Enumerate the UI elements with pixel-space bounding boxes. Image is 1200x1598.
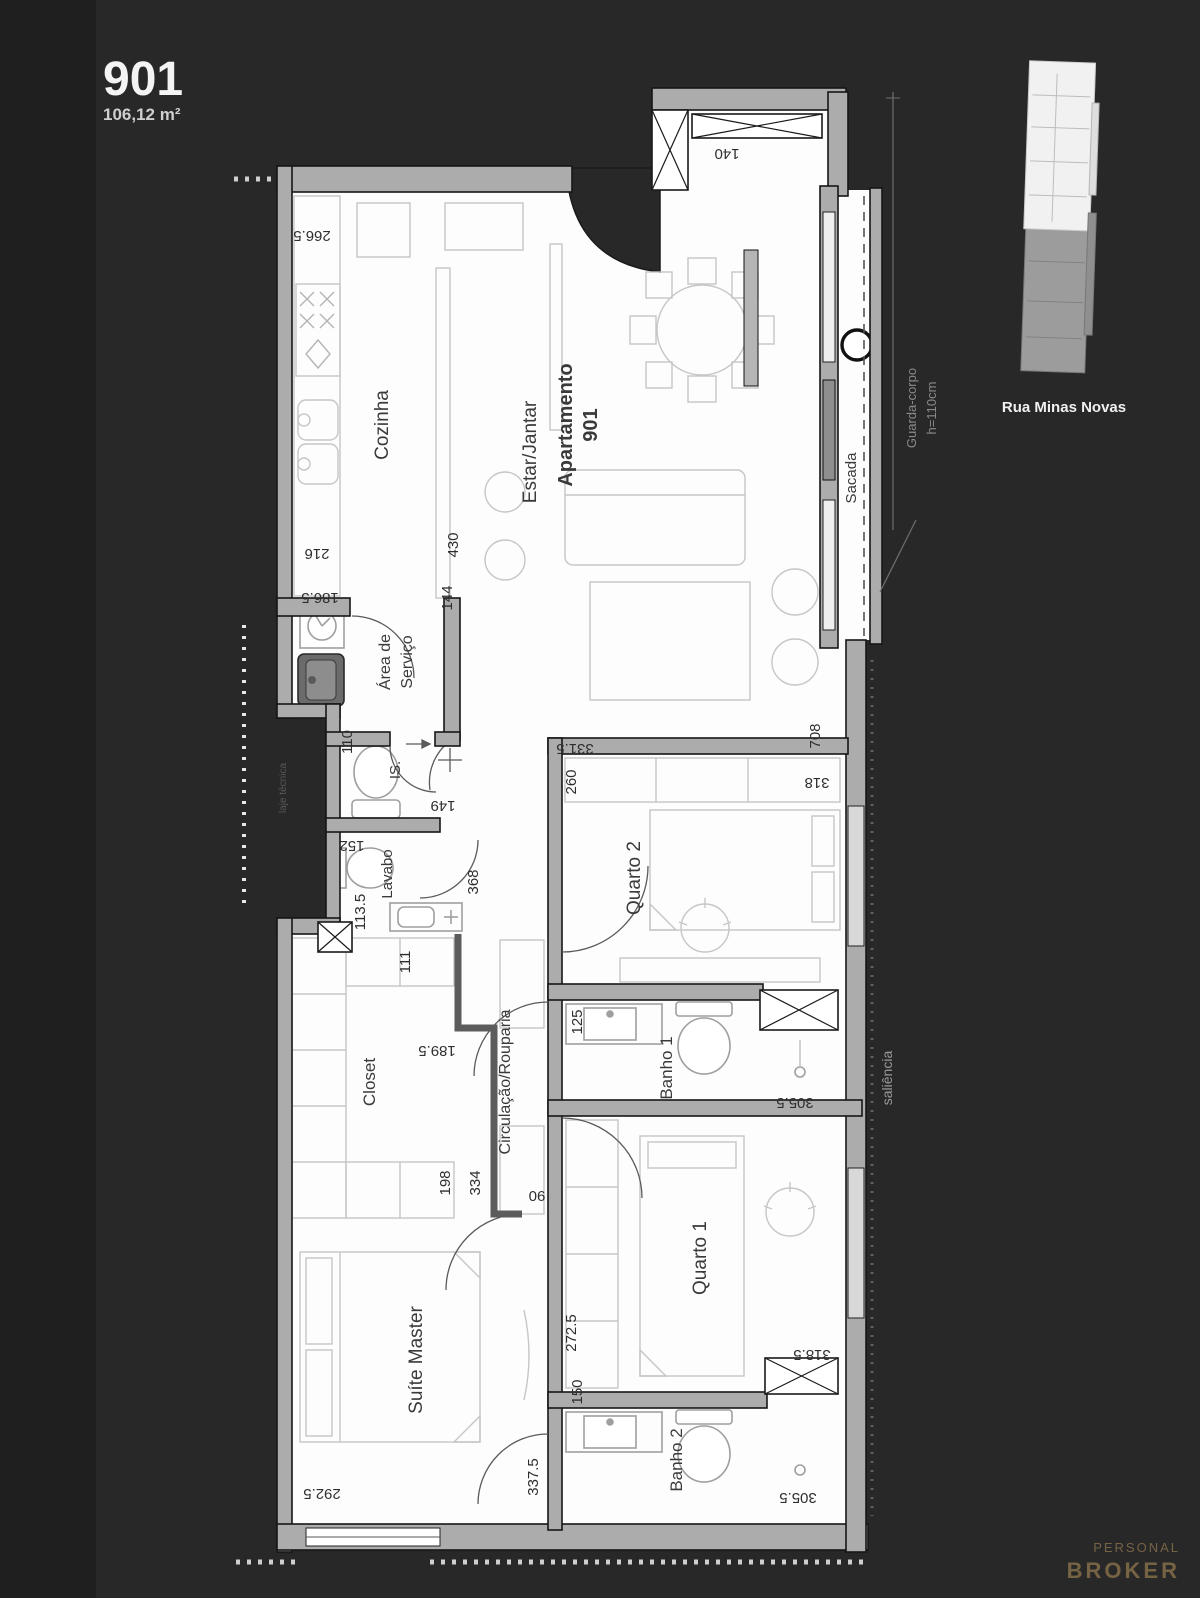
- balcony-door-leaf: [823, 380, 835, 480]
- dim-430: 430: [445, 532, 462, 557]
- logo-personal: PERSONAL: [1093, 1540, 1180, 1555]
- logo-broker: BROKER: [1067, 1558, 1180, 1583]
- label-apto-2: 901: [580, 408, 602, 441]
- label-servico-1: Área de: [375, 634, 394, 690]
- dim-318-5: 318.5: [793, 1346, 831, 1363]
- dim-272-5: 272.5: [563, 1314, 580, 1352]
- wall-top: [277, 166, 572, 192]
- dim-368: 368: [465, 869, 482, 894]
- dim-318: 318: [804, 774, 829, 791]
- is-toilet: [352, 746, 400, 818]
- wall-is-top-b: [435, 732, 460, 746]
- label-lavabo: Lavabo: [379, 849, 396, 898]
- balcony-column: [842, 330, 872, 360]
- wall-corridor: [548, 738, 562, 1530]
- wall-is-top-a: [326, 732, 390, 746]
- unit-area: 106,12 m²: [103, 105, 181, 124]
- label-is: IS.: [387, 761, 404, 779]
- label-estar: Estar/Jantar: [520, 400, 541, 503]
- laundry-tank: [298, 654, 344, 706]
- dim-331-5: 331.5: [556, 740, 594, 757]
- dim-189-5: 189.5: [418, 1042, 456, 1059]
- dim-260: 260: [563, 769, 580, 794]
- window-estar-b: [823, 500, 835, 630]
- wall-is-lavabo: [326, 818, 440, 832]
- dim-150: 150: [569, 1379, 586, 1404]
- left-shade: [0, 0, 96, 1598]
- dim-198: 198: [437, 1170, 454, 1195]
- label-guardacorpo-2: h=110cm: [924, 382, 939, 435]
- wall-quarto2-banho1: [548, 984, 763, 1000]
- shaft-lavabo: [318, 922, 352, 952]
- label-circulacao: Circulação/Rouparia: [497, 1009, 514, 1154]
- dim-110: 110: [339, 730, 356, 754]
- label-saliencia: saliência: [879, 1051, 895, 1106]
- label-cozinha: Cozinha: [372, 390, 393, 460]
- dim-144: 144: [439, 585, 456, 610]
- dim-90: 90: [529, 1187, 546, 1204]
- dim-152: 152: [339, 837, 364, 854]
- dim-305-5b: 305.5: [779, 1489, 817, 1506]
- label-suite: Suíte Master: [406, 1305, 427, 1413]
- wall-banho1-quarto1: [548, 1100, 862, 1116]
- guard-rail-leader: [880, 520, 916, 592]
- wall-hall-right: [828, 92, 848, 196]
- dim-305-5a: 305.5: [776, 1094, 814, 1111]
- label-quarto1: Quarto 1: [690, 1221, 711, 1295]
- minimap-building-upper: [1024, 61, 1096, 231]
- dim-708: 708: [807, 723, 824, 748]
- minimap: [1019, 61, 1102, 373]
- dim-149: 149: [430, 797, 455, 814]
- window-quarto1: [848, 1168, 864, 1318]
- dim-216: 216: [304, 545, 329, 562]
- dim-292-5: 292.5: [303, 1485, 341, 1502]
- floorplan-canvas: 901 106,12 m²: [0, 0, 1200, 1598]
- label-banho2: Banho 2: [667, 1428, 686, 1491]
- brand-logo: PERSONAL BROKER: [1067, 1540, 1180, 1583]
- shaft-hall-band: [692, 114, 822, 138]
- entry-door-leaf: [744, 250, 758, 386]
- window-quarto2: [848, 806, 864, 946]
- wall-left-lower: [277, 918, 292, 1552]
- dim-125: 125: [569, 1009, 586, 1034]
- dim-140: 140: [714, 145, 739, 162]
- floorplan-page: 901 106,12 m²: [0, 0, 1200, 1598]
- label-guardacorpo-1: Guarda-corpo: [904, 368, 919, 448]
- shaft-hall-column: [652, 110, 688, 190]
- dim-186-5: 186.5: [301, 589, 339, 606]
- label-sacada: Sacada: [843, 452, 860, 504]
- wall-balcony-outer: [870, 188, 882, 644]
- label-banho1: Banho 1: [657, 1036, 676, 1099]
- dim-334: 334: [467, 1170, 484, 1195]
- label-quarto2: Quarto 2: [624, 841, 645, 915]
- wall-hall-top: [652, 88, 846, 110]
- dim-337-5: 337.5: [525, 1458, 542, 1496]
- dim-111: 111: [397, 951, 414, 974]
- label-servico-2: Serviço: [399, 635, 416, 688]
- street-label: Rua Minas Novas: [1002, 399, 1126, 416]
- unit-number: 901: [103, 53, 183, 106]
- wall-servico-estar: [444, 598, 460, 740]
- header: 901 106,12 m²: [103, 53, 183, 124]
- label-laje: laje técnica: [278, 763, 289, 813]
- label-apto-1: Apartamento: [555, 363, 577, 486]
- wall-right-lower: [846, 640, 866, 1552]
- label-closet: Closet: [360, 1058, 379, 1106]
- shaft-banho1: [760, 990, 838, 1030]
- dim-113-5: 113.5: [352, 894, 369, 930]
- wall-left-upper: [277, 166, 292, 718]
- dim-266-5: 266.5: [293, 227, 331, 244]
- window-estar-a: [823, 212, 835, 362]
